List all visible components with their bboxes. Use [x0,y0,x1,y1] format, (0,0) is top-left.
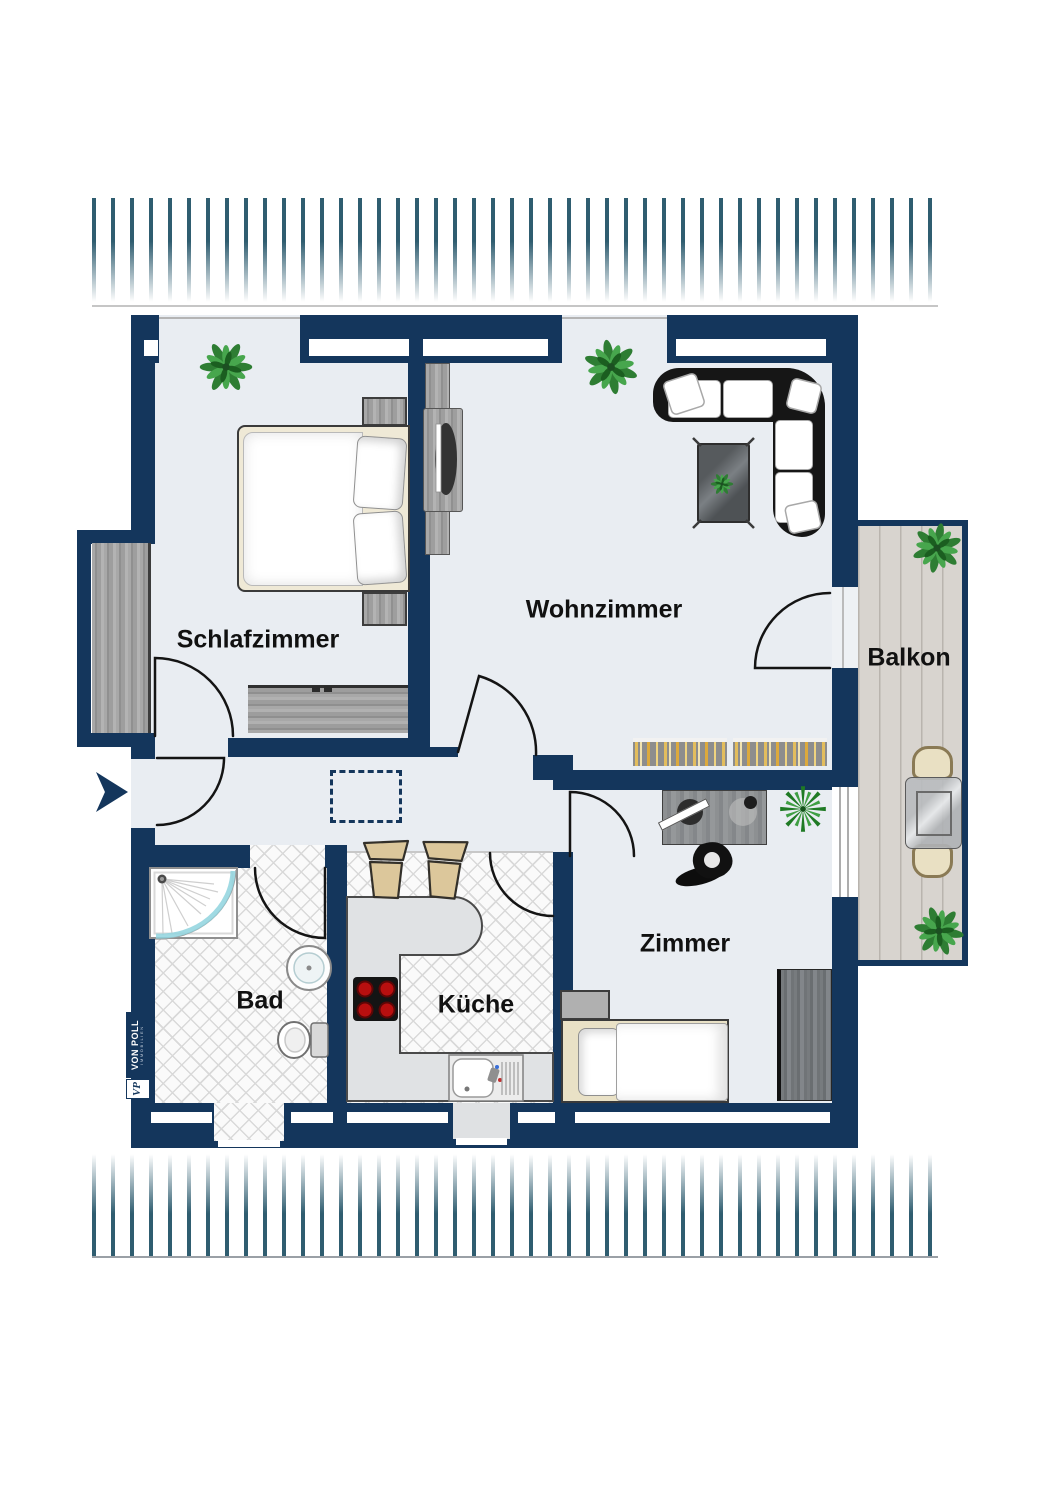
vonpoll-logo-bar: VON POLL IMMOBILIEN [126,1012,150,1078]
plant-balcony-top [903,514,972,583]
room-label-kueche: Küche [438,991,514,1020]
plant-bedroom [200,342,253,392]
door-balcony [755,593,830,668]
room-label-schlafzimmer: Schlafzimmer [177,626,340,655]
room-label-zimmer: Zimmer [640,930,730,959]
plant-desk-spiky [780,786,826,832]
plant-coffee-table [711,473,734,494]
floor-plan: Schlafzimmer Wohnzimmer Balkon Bad Küche… [0,0,1060,1500]
toilet [278,1022,328,1058]
kitchen-sink [449,1055,523,1101]
plan-symbol-overlay [0,0,1060,1500]
kitchen-chair-1 [364,841,408,898]
room-label-wohnzimmer: Wohnzimmer [526,596,683,625]
vonpoll-logo: VON POLL IMMOBILIEN VP [126,1012,150,1100]
cabinet-mirror-detail [435,423,457,495]
desk-chair [674,842,733,890]
door-bedroom [155,658,233,736]
sofa-pillows [663,373,823,534]
kitchen-chair-2 [421,840,468,899]
room-label-bad: Bad [236,987,283,1016]
washbasin [287,946,331,990]
vonpoll-logo-subtitle: IMMOBILIEN [141,1020,145,1070]
plant-balcony-bottom [908,899,970,962]
stove [353,977,398,1021]
door-kitchen [490,853,553,916]
door-zimmer [570,792,634,856]
door-living [458,676,536,755]
plant-living [576,333,646,401]
room-label-balkon: Balkon [867,644,950,673]
shower [150,868,237,939]
vonpoll-monogram: VP [132,1082,144,1096]
door-bath [255,868,325,938]
vonpoll-monogram-box: VP [126,1079,150,1099]
door-entrance [157,758,224,825]
